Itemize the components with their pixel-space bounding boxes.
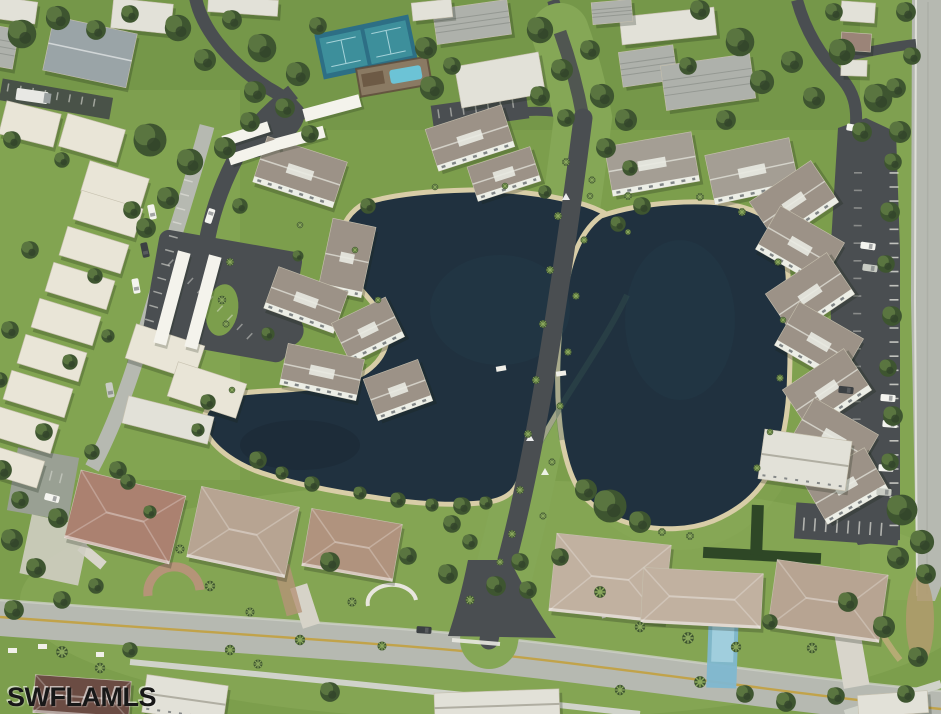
palm-tree	[218, 296, 226, 304]
tree	[883, 406, 903, 426]
tree	[575, 479, 597, 501]
tree	[852, 122, 872, 142]
palm-tree	[548, 458, 555, 465]
palm-tree	[767, 429, 774, 436]
tree	[462, 534, 477, 549]
tree	[214, 137, 236, 159]
tree	[194, 49, 216, 71]
fence-segment	[38, 644, 47, 649]
tree	[781, 51, 803, 73]
tree	[889, 121, 911, 143]
palm-tree	[564, 348, 571, 355]
tree	[511, 553, 529, 571]
palm-tree	[347, 597, 356, 606]
tree	[46, 6, 70, 30]
tree	[293, 251, 304, 262]
tree	[200, 394, 215, 409]
tree	[286, 62, 310, 86]
tree	[479, 496, 492, 509]
house	[434, 689, 563, 714]
tree	[320, 682, 340, 702]
tree	[877, 255, 895, 273]
tree	[26, 558, 46, 578]
tree	[884, 153, 902, 171]
tree	[143, 505, 156, 518]
tree	[120, 474, 135, 489]
building	[840, 1, 879, 28]
parked-car	[880, 394, 896, 402]
palm-tree	[229, 387, 236, 394]
watermark-text: SWFLAMLS	[7, 684, 156, 711]
palm-tree	[615, 685, 625, 695]
aerial-scene	[0, 0, 941, 714]
tree	[886, 78, 906, 98]
tree	[629, 511, 651, 533]
palm-tree	[587, 193, 594, 200]
tree	[762, 614, 777, 629]
tree	[122, 642, 137, 657]
tree	[249, 451, 267, 469]
palm-tree	[539, 320, 547, 328]
tree	[88, 578, 103, 593]
palm-tree	[222, 320, 229, 327]
tree	[803, 87, 825, 109]
palm-tree	[508, 530, 516, 538]
palm-tree	[807, 643, 817, 653]
tree	[157, 187, 179, 209]
palm-tree	[295, 635, 305, 645]
tree	[177, 149, 203, 175]
parked-car	[876, 488, 891, 496]
tree	[551, 59, 573, 81]
tree	[248, 34, 277, 63]
tree	[415, 37, 437, 59]
aerial-photo: SWFLAMLS	[0, 0, 941, 714]
tree	[425, 498, 438, 511]
palm-tree	[686, 532, 694, 540]
tree	[360, 198, 375, 213]
building	[591, 0, 636, 29]
tree	[750, 70, 774, 94]
tree	[453, 497, 471, 515]
tree	[136, 218, 156, 238]
tree	[399, 547, 417, 565]
palm-tree	[253, 659, 262, 668]
palm-tree	[696, 193, 704, 201]
tree	[887, 495, 918, 526]
tree	[443, 515, 461, 533]
tree	[580, 40, 600, 60]
tree	[8, 20, 37, 49]
tree	[240, 112, 260, 132]
tree	[101, 329, 114, 342]
palm-tree	[562, 158, 570, 166]
tree	[519, 581, 537, 599]
palm-tree	[635, 622, 645, 632]
palm-tree	[776, 374, 783, 381]
palm-tree	[245, 607, 254, 616]
tree	[301, 125, 319, 143]
road-seam	[927, 2, 928, 594]
tree	[596, 138, 616, 158]
palm-tree	[432, 184, 439, 191]
tree	[897, 685, 915, 703]
palm-tree	[738, 208, 746, 216]
tree	[21, 241, 39, 259]
palm-tree	[56, 646, 68, 658]
tree	[610, 216, 625, 231]
tree	[62, 354, 77, 369]
palm-tree	[594, 586, 606, 598]
palm-tree	[774, 258, 781, 265]
tree	[829, 39, 855, 65]
palm-tree	[588, 176, 595, 183]
tree	[304, 476, 319, 491]
tree	[590, 84, 614, 108]
tree	[87, 268, 102, 283]
tree	[679, 57, 697, 75]
tree	[86, 20, 106, 40]
tree	[53, 591, 71, 609]
palm-tree	[205, 581, 215, 591]
tree	[633, 197, 651, 215]
palm-tree	[502, 183, 509, 190]
tree	[530, 86, 550, 106]
tree	[35, 423, 53, 441]
palm-tree	[625, 229, 631, 235]
palm-tree	[225, 645, 235, 655]
palm-tree	[580, 236, 587, 243]
palm-tree	[496, 558, 503, 565]
palm-tree	[780, 317, 787, 324]
water-sheen-east	[625, 240, 735, 400]
palm-tree	[377, 641, 386, 650]
tree	[275, 98, 295, 118]
tree	[882, 306, 902, 326]
tree	[881, 453, 899, 471]
palm-tree	[226, 258, 234, 266]
tree	[309, 17, 327, 35]
tree	[443, 57, 461, 75]
tree	[54, 152, 69, 167]
tree	[776, 692, 796, 712]
palm-tree	[539, 512, 546, 519]
tree	[887, 547, 909, 569]
tree	[538, 185, 551, 198]
tree	[594, 490, 627, 523]
tree	[261, 327, 274, 340]
tree	[916, 564, 936, 584]
tree	[879, 359, 897, 377]
tree	[690, 0, 710, 20]
tree	[716, 110, 736, 130]
tree	[827, 687, 845, 705]
tree	[232, 198, 247, 213]
tree	[910, 530, 934, 554]
tree	[527, 17, 553, 43]
hedge-row	[750, 505, 764, 555]
tree	[438, 564, 458, 584]
tree	[615, 109, 637, 131]
tree	[275, 466, 288, 479]
palm-tree	[546, 266, 554, 274]
tree	[48, 508, 68, 528]
tree	[622, 160, 637, 175]
palm-tree	[524, 430, 532, 438]
tree	[390, 492, 405, 507]
palm-tree	[624, 192, 632, 200]
tree	[896, 2, 916, 22]
tree	[4, 600, 24, 620]
tree	[903, 47, 921, 65]
palm-tree	[554, 212, 562, 220]
tree	[320, 552, 340, 572]
tree	[420, 76, 444, 100]
palm-tree	[352, 247, 359, 254]
palm-tree	[572, 292, 579, 299]
tree	[121, 5, 139, 23]
tree	[825, 3, 843, 21]
tree	[123, 201, 141, 219]
tree	[222, 10, 242, 30]
palm-tree	[694, 676, 706, 688]
house	[640, 567, 766, 632]
palm-tree	[297, 222, 304, 229]
tree	[557, 109, 575, 127]
palm-tree	[95, 663, 105, 673]
tree	[880, 202, 900, 222]
palm-tree	[753, 464, 760, 471]
palm-tree	[731, 642, 741, 652]
tree	[165, 15, 191, 41]
tree	[134, 124, 167, 157]
tree	[908, 647, 928, 667]
tree	[551, 548, 569, 566]
palm-tree	[682, 632, 694, 644]
palm-tree	[375, 297, 382, 304]
tree	[353, 486, 366, 499]
tree	[838, 592, 858, 612]
tree	[1, 529, 23, 551]
tree	[3, 131, 21, 149]
tree	[736, 685, 754, 703]
tree	[726, 28, 755, 57]
palm-tree	[556, 402, 563, 409]
tree	[11, 491, 29, 509]
palm-tree	[532, 376, 540, 384]
palm-tree	[175, 544, 184, 553]
tree	[1, 321, 19, 339]
tree	[244, 81, 266, 103]
parked-car	[416, 626, 431, 634]
palm-tree	[658, 528, 666, 536]
palm-tree	[516, 486, 524, 494]
tree	[191, 423, 204, 436]
tree	[84, 444, 99, 459]
tree	[873, 616, 895, 638]
fence-segment	[8, 648, 17, 653]
tree	[486, 576, 506, 596]
fence-segment	[96, 652, 104, 657]
palm-tree	[465, 595, 474, 604]
